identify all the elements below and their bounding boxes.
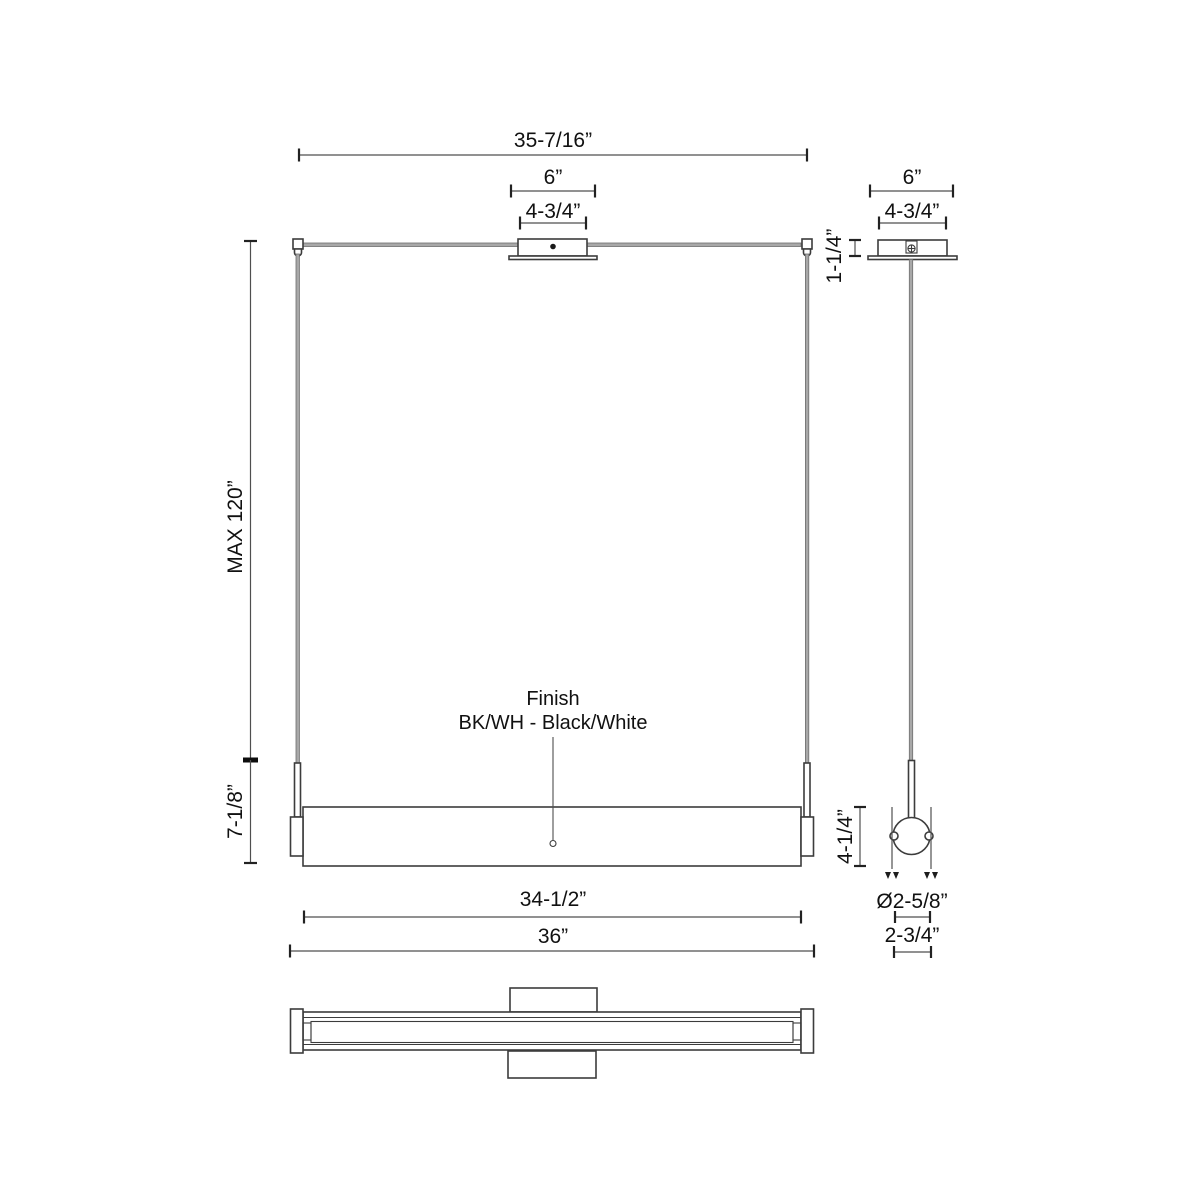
- section-screw-right: [925, 832, 933, 840]
- dim-overall-suspension: 35-7/16”: [299, 129, 807, 162]
- dim-stem-assembly-label: 7-1/8”: [224, 784, 247, 839]
- finish-note-title: Finish: [526, 688, 579, 710]
- dim-canopy-flange-side-label: 6”: [903, 166, 922, 189]
- finish-note-value: BK/WH - Black/White: [459, 712, 648, 734]
- dim-body-width: 2-3/4”: [885, 924, 940, 958]
- dim-overall-length-label: 36”: [538, 925, 568, 948]
- dim-stem-assembly: 7-1/8”: [224, 760, 257, 863]
- dim-canopy-flange-side: 6”: [870, 166, 953, 198]
- dim-canopy-body-side: 4-3/4”: [879, 200, 946, 230]
- fixture-bar-front: [291, 807, 814, 866]
- dim-lens-length-label: 34-1/2”: [520, 888, 587, 911]
- canopy-side: [868, 240, 957, 260]
- dim-max-height-label: MAX 120”: [224, 480, 247, 573]
- canopy-plan-lower: [508, 1051, 596, 1078]
- fixture-body-section: [890, 818, 933, 855]
- end-cap-right: [801, 817, 814, 856]
- dim-lens-length: 34-1/2”: [304, 888, 801, 924]
- fixture-bar-plan: [291, 1009, 814, 1053]
- front-view: 35-7/16” 6” 4-3/4”: [224, 129, 866, 958]
- dim-body-width-label: 2-3/4”: [885, 924, 940, 947]
- bottom-view: [291, 988, 814, 1078]
- cable-side: [909, 260, 912, 761]
- dim-canopy-body-front-label: 4-3/4”: [526, 200, 581, 223]
- dim-canopy-body-side-label: 4-3/4”: [885, 200, 940, 223]
- dim-canopy-height: 1-1/4”: [823, 229, 861, 284]
- wire-fitting-left: [293, 239, 303, 256]
- wire-fitting-right: [802, 239, 812, 256]
- dim-overall-length: 36”: [290, 925, 814, 958]
- suspension-cables: [296, 254, 809, 763]
- end-cap-right-plan: [801, 1009, 814, 1053]
- spec-sheet-page: 35-7/16” 6” 4-3/4”: [0, 0, 1200, 1200]
- dim-diameter-label: Ø2-5/8”: [876, 890, 947, 913]
- dim-canopy-flange-front: 6”: [511, 166, 595, 198]
- canopy-center-dot: [550, 244, 556, 250]
- section-screw-left: [890, 832, 898, 840]
- dim-fixture-height: 4-1/4”: [834, 807, 866, 866]
- end-cap-left-plan: [291, 1009, 304, 1053]
- dim-fixture-height-label: 4-1/4”: [834, 809, 857, 864]
- dimension-drawing: 35-7/16” 6” 4-3/4”: [0, 0, 1200, 1200]
- canopy-plan-upper: [510, 988, 597, 1012]
- end-cap-left: [291, 817, 304, 856]
- dim-canopy-flange-front-label: 6”: [544, 166, 563, 189]
- stem-side: [909, 761, 915, 819]
- dim-canopy-height-label: 1-1/4”: [823, 229, 846, 284]
- dim-overall-suspension-label: 35-7/16”: [514, 129, 592, 152]
- canopy-front: [509, 239, 597, 260]
- dim-canopy-body-front: 4-3/4”: [520, 200, 586, 230]
- dim-max-height: MAX 120”: [224, 241, 258, 760]
